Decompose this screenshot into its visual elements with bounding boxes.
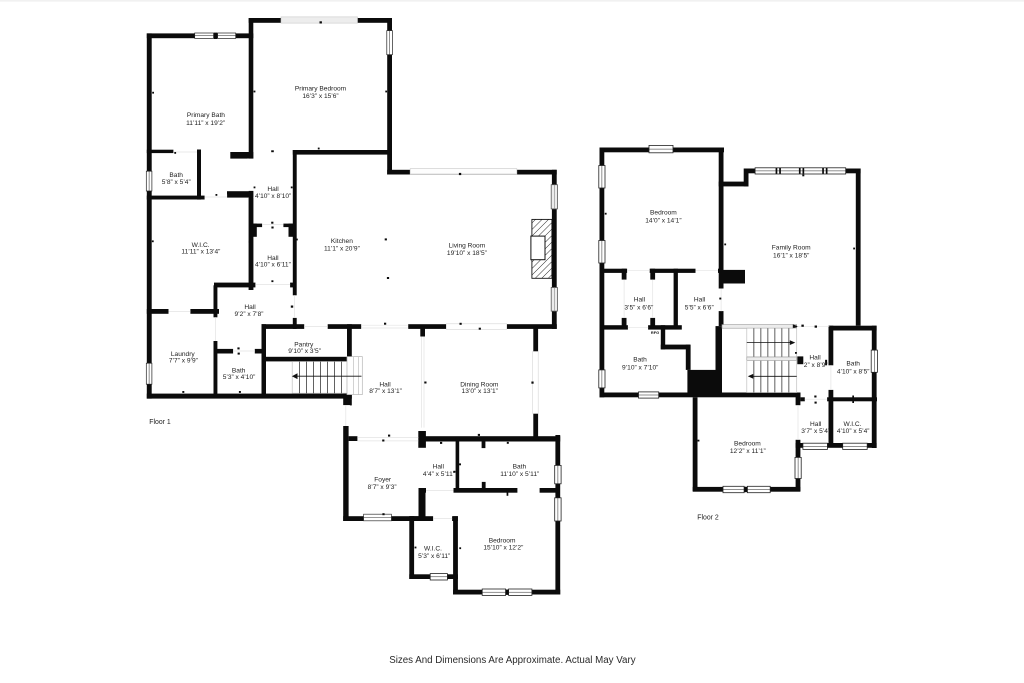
svg-text:11’11” x 13’4”: 11’11” x 13’4” (181, 248, 220, 255)
svg-text:Bedroom: Bedroom (650, 209, 677, 216)
svg-text:Floor 1: Floor 1 (149, 419, 171, 426)
svg-text:Hall: Hall (244, 304, 256, 311)
svg-text:12’2” x 11’1”: 12’2” x 11’1” (730, 448, 766, 455)
svg-text:Bath: Bath (846, 361, 860, 368)
svg-text:Foyer: Foyer (374, 477, 392, 484)
svg-text:4’10” x 8’5”: 4’10” x 8’5” (837, 369, 870, 376)
svg-text:Hall: Hall (433, 464, 445, 471)
svg-text:RFG: RFG (651, 330, 659, 335)
svg-text:Bath: Bath (513, 463, 527, 470)
svg-text:W.I.C.: W.I.C. (844, 421, 862, 428)
svg-text:11’10” x 5’11”: 11’10” x 5’11” (500, 471, 539, 478)
svg-text:Bath: Bath (633, 357, 647, 364)
svg-text:11’1” x 20’9”: 11’1” x 20’9” (324, 246, 360, 253)
svg-text:Family Room: Family Room (772, 244, 811, 251)
svg-text:3’7” x 5’4”: 3’7” x 5’4” (801, 428, 830, 435)
svg-text:4’10” x 5’4”: 4’10” x 5’4” (837, 428, 870, 435)
svg-text:8’7” x 9’3”: 8’7” x 9’3” (368, 484, 397, 491)
svg-text:Hall: Hall (809, 354, 821, 361)
svg-text:Floor 2: Floor 2 (697, 514, 719, 521)
svg-text:Kitchen: Kitchen (331, 238, 353, 245)
svg-text:Living Room: Living Room (449, 243, 486, 250)
svg-text:Hall: Hall (694, 297, 706, 304)
svg-text:5’3” x 6’11”: 5’3” x 6’11” (418, 553, 450, 560)
svg-text:2” x 8’9”: 2” x 8’9” (804, 362, 828, 369)
svg-text:W.I.C.: W.I.C. (424, 546, 442, 553)
svg-text:Primary Bath: Primary Bath (187, 112, 225, 119)
svg-text:4’10” x 6’11”: 4’10” x 6’11” (255, 262, 291, 269)
svg-text:Hall: Hall (810, 421, 822, 428)
svg-text:5’5” x 6’6”: 5’5” x 6’6” (685, 304, 714, 311)
svg-text:Primary Bedroom: Primary Bedroom (295, 85, 347, 92)
svg-text:19’10” x 18’5”: 19’10” x 18’5” (447, 250, 487, 257)
svg-text:Bedroom: Bedroom (489, 537, 516, 544)
svg-text:4’10” x 8’10”: 4’10” x 8’10” (255, 193, 291, 200)
svg-text:16’3” x 15’6”: 16’3” x 15’6” (302, 93, 338, 100)
svg-text:16’1” x 18’5”: 16’1” x 18’5” (773, 252, 809, 259)
svg-text:15’10” x 12’2”: 15’10” x 12’2” (483, 545, 523, 552)
svg-text:9’10” x 3’5”: 9’10” x 3’5” (288, 348, 321, 355)
svg-text:14’0” x 14’1”: 14’0” x 14’1” (645, 217, 681, 224)
svg-text:11’11” x 19’2”: 11’11” x 19’2” (186, 120, 225, 127)
svg-text:7’7” x 9’9”: 7’7” x 9’9” (169, 358, 198, 365)
svg-text:5’8” x 5’4”: 5’8” x 5’4” (162, 179, 191, 186)
svg-text:3’5” x 6’6”: 3’5” x 6’6” (624, 304, 653, 311)
svg-text:13’0” x 13’1”: 13’0” x 13’1” (462, 388, 498, 395)
svg-text:9’10” x 7’10”: 9’10” x 7’10” (622, 364, 658, 371)
svg-text:Hall: Hall (634, 297, 646, 304)
svg-text:Sizes And Dimensions Are Appro: Sizes And Dimensions Are Approximate. Ac… (389, 655, 636, 666)
svg-text:4’4” x 5’11”: 4’4” x 5’11” (423, 471, 455, 478)
svg-text:8’7” x 13’1”: 8’7” x 13’1” (369, 388, 402, 395)
svg-text:5’3” x 4’10”: 5’3” x 4’10” (223, 374, 256, 381)
svg-text:9’2” x 7’8”: 9’2” x 7’8” (235, 311, 264, 318)
svg-text:Bedroom: Bedroom (734, 440, 761, 447)
